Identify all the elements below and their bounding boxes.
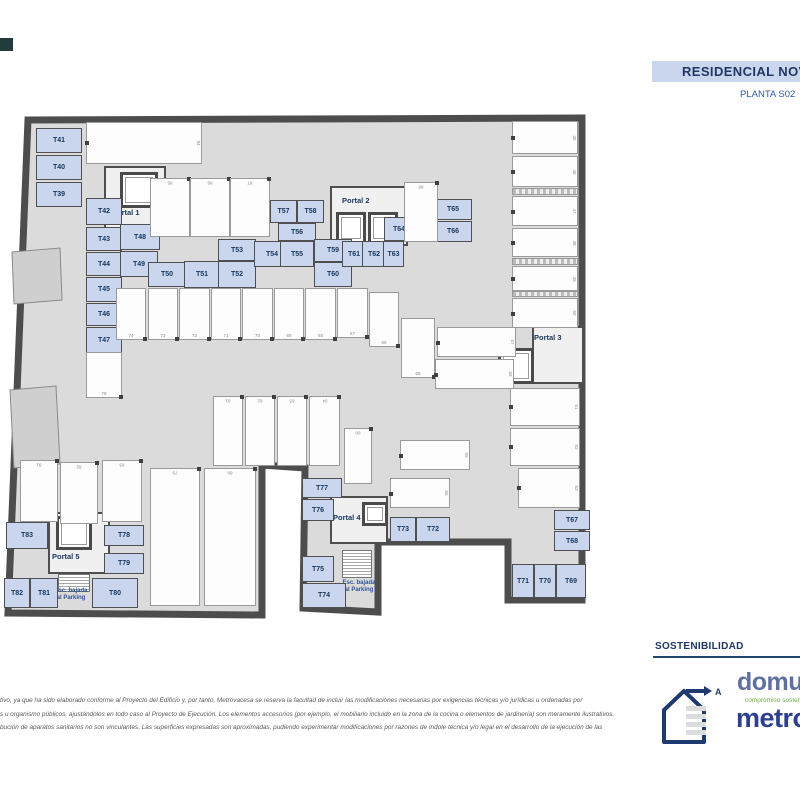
- storage-room-t73: T73: [390, 517, 416, 542]
- parking-space-number: 56: [507, 371, 512, 376]
- parking-space-70: 70: [242, 288, 273, 340]
- parking-space-48: 48: [512, 228, 578, 257]
- parking-space-number: 78: [101, 392, 106, 397]
- parking-space-69: 69: [274, 288, 304, 340]
- parking-space-number: 82: [76, 464, 81, 469]
- parking-space-53: 53: [518, 468, 580, 508]
- parking-space-number: 68: [318, 334, 323, 339]
- ramp-block: [10, 386, 60, 468]
- parking-space-number: 55: [443, 490, 448, 495]
- parking-space-49: 49: [512, 266, 578, 291]
- metrovacesa-logo: metrovacesa: [736, 703, 800, 734]
- parking-space-number: 84: [195, 140, 200, 145]
- parking-space-number: 80: [227, 470, 232, 475]
- parking-space-52: 52: [510, 428, 580, 466]
- storage-room-t70: T70: [534, 564, 556, 598]
- parking-space-number: 62: [257, 398, 262, 403]
- elevator-cab: [341, 217, 361, 239]
- storage-room-t69: T69: [556, 564, 586, 598]
- parking-space-84: 84: [86, 122, 202, 164]
- hatch-strip: [512, 291, 578, 297]
- parking-space-45: 45: [512, 121, 578, 154]
- stairs-label-line1: Esc. bajada: [54, 588, 87, 594]
- portal-5-label: Portal 5: [52, 552, 80, 561]
- parking-space-number: 57: [509, 339, 514, 344]
- stairs-south: [342, 550, 372, 578]
- parking-space-80: 80: [204, 468, 256, 606]
- storage-room-t42: T42: [86, 198, 122, 225]
- parking-space-72: 72: [179, 288, 210, 340]
- parking-space-67: 67: [337, 288, 368, 338]
- parking-space-50: 50: [512, 298, 578, 328]
- legal-disclaimer: tivo, ya que ha sido elaborado conforme …: [0, 694, 636, 735]
- storage-room-t79: T79: [104, 553, 144, 574]
- parking-space-88: 88: [404, 182, 438, 242]
- parking-space-63: 63: [277, 396, 307, 466]
- storage-room-t76: T76: [302, 499, 334, 521]
- storage-room-t58: T58: [297, 200, 324, 223]
- parking-space-number: 67: [350, 332, 355, 337]
- storage-room-t40: T40: [36, 155, 82, 180]
- parking-space-60: 60: [344, 428, 372, 484]
- parking-space-55: 55: [390, 478, 450, 508]
- parking-space-79: 79: [150, 468, 200, 606]
- parking-space-number: 74: [128, 334, 133, 339]
- parking-space-number: 79: [172, 470, 177, 475]
- parking-space-82: 82: [60, 462, 98, 524]
- parking-space-number: 45: [571, 135, 576, 140]
- parking-space-78: 78: [86, 352, 122, 398]
- parking-space-number: 59: [463, 452, 468, 457]
- stairs-label-line1: Esc. bajada: [342, 580, 375, 586]
- disclaimer-line: bución de aparatos sanitarios no son vin…: [0, 721, 636, 735]
- parking-space-number: 64: [322, 398, 327, 403]
- parking-space-number: 86: [207, 180, 212, 185]
- parking-space-number: 65: [415, 372, 420, 377]
- portal-4-label: Portal 4: [333, 513, 361, 522]
- disclaimer-line: s u organismo públicos, ajustándolos en …: [0, 708, 636, 722]
- parking-space-61: 61: [213, 396, 243, 466]
- parking-space-62: 62: [245, 396, 275, 466]
- storage-room-t56: T56: [278, 223, 316, 241]
- storage-room-t44: T44: [86, 252, 122, 276]
- stairs-label-line2: al Parking: [57, 595, 86, 601]
- energy-label: A: [715, 687, 722, 697]
- storage-room-t41: T41: [36, 128, 82, 153]
- elevator-portal-4: [362, 502, 388, 526]
- storage-room-t82: T82: [4, 578, 30, 608]
- parking-space-51: 51: [510, 388, 580, 426]
- parking-space-number: 53: [573, 485, 578, 490]
- parking-space-number: 70: [255, 334, 260, 339]
- parking-space-83: 83: [102, 460, 142, 522]
- domum-logo: domum: [737, 668, 800, 697]
- parking-space-number: 85: [167, 180, 172, 185]
- parking-space-number: 60: [355, 430, 360, 435]
- hatch-strip: [512, 258, 578, 265]
- storage-room-t78: T78: [104, 525, 144, 546]
- storage-room-t52: T52: [218, 261, 256, 288]
- parking-space-number: 73: [160, 334, 165, 339]
- parking-space-73: 73: [148, 288, 178, 340]
- parking-space-number: 81: [36, 462, 41, 467]
- parking-space-86: 86: [190, 178, 230, 237]
- parking-space-number: 49: [571, 276, 576, 281]
- elevator-cab: [125, 177, 153, 203]
- parking-space-66: 66: [369, 292, 399, 347]
- portal-2-label: Portal 2: [342, 196, 370, 205]
- hatch-strip: [512, 188, 578, 195]
- storage-room-t75: T75: [302, 556, 334, 582]
- sustainability-rule: [653, 656, 800, 658]
- parking-space-56: 56: [435, 359, 514, 389]
- parking-space-number: 46: [571, 169, 576, 174]
- parking-space-87: 87: [230, 178, 270, 237]
- disclaimer-line: tivo, ya que ha sido elaborado conforme …: [0, 694, 636, 708]
- storage-room-t50: T50: [148, 262, 186, 287]
- parking-space-74: 74: [116, 288, 146, 340]
- storage-room-t57: T57: [270, 200, 297, 223]
- storage-room-t66: T66: [434, 221, 472, 242]
- elevator-cab: [61, 521, 87, 545]
- ramp-block: [12, 248, 62, 304]
- parking-space-number: 61: [225, 398, 230, 403]
- storage-room-t74: T74: [302, 583, 346, 608]
- elevator-cab: [367, 507, 383, 521]
- storage-room-t65: T65: [434, 199, 472, 220]
- parking-space-85: 85: [150, 178, 190, 237]
- parking-space-number: 50: [571, 310, 576, 315]
- storage-room-t39: T39: [36, 182, 82, 207]
- storage-room-t83: T83: [6, 522, 48, 549]
- storage-room-t43: T43: [86, 227, 122, 251]
- storage-room-t81: T81: [30, 578, 58, 608]
- parking-space-number: 47: [571, 208, 576, 213]
- parking-space-64: 64: [309, 396, 340, 466]
- parking-space-number: 48: [571, 240, 576, 245]
- storage-room-t51: T51: [184, 261, 220, 288]
- parking-space-81: 81: [20, 460, 58, 522]
- portal-3-label: Portal 3: [534, 333, 562, 342]
- parking-space-number: 51: [573, 404, 578, 409]
- storage-room-t71: T71: [512, 564, 534, 598]
- parking-space-68: 68: [305, 288, 336, 340]
- storage-room-t77: T77: [302, 478, 342, 498]
- storage-room-t63: T63: [383, 241, 404, 267]
- parking-space-46: 46: [512, 156, 578, 187]
- parking-space-number: 71: [223, 334, 228, 339]
- parking-space-57: 57: [437, 327, 516, 357]
- parking-space-65: 65: [401, 318, 435, 378]
- sustainability-heading: SOSTENIBILIDAD: [655, 641, 744, 652]
- parking-space-number: 87: [247, 180, 252, 185]
- stairs-label-line2: al Parking: [345, 587, 374, 593]
- parking-space-number: 66: [381, 341, 386, 346]
- storage-room-t67: T67: [554, 510, 590, 530]
- parking-space-number: 52: [573, 444, 578, 449]
- energy-house-icon: A: [656, 680, 722, 746]
- parking-space-71: 71: [211, 288, 241, 340]
- parking-space-number: 72: [192, 334, 197, 339]
- parking-space-number: 63: [289, 398, 294, 403]
- parking-space-number: 69: [286, 334, 291, 339]
- storage-room-t68: T68: [554, 531, 590, 551]
- storage-room-t55: T55: [280, 241, 314, 267]
- parking-space-47: 47: [512, 196, 578, 226]
- storage-room-t72: T72: [416, 517, 450, 542]
- parking-space-59: 59: [400, 440, 470, 470]
- storage-room-t53: T53: [218, 239, 256, 261]
- parking-space-number: 88: [418, 184, 423, 189]
- storage-room-t80: T80: [92, 578, 138, 608]
- parking-space-number: 83: [119, 462, 124, 467]
